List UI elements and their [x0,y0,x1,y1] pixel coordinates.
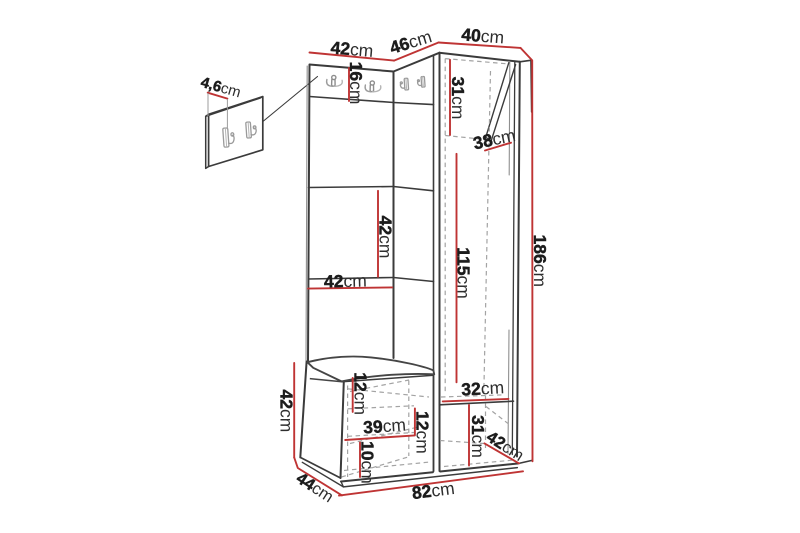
svg-text:82cm: 82cm [411,478,456,503]
svg-text:42cm: 42cm [483,428,527,465]
svg-text:186cm: 186cm [530,235,550,288]
svg-text:12cm: 12cm [351,372,371,415]
svg-text:16cm: 16cm [346,62,366,105]
svg-text:10cm: 10cm [358,441,378,484]
svg-text:42cm: 42cm [376,216,396,259]
svg-text:39cm: 39cm [363,415,407,438]
svg-text:12cm: 12cm [413,411,433,454]
svg-text:44cm: 44cm [293,469,337,506]
svg-text:40cm: 40cm [461,24,505,47]
svg-text:42cm: 42cm [276,390,296,433]
svg-text:38cm: 38cm [471,125,517,153]
svg-text:42cm: 42cm [330,37,374,61]
svg-text:31cm: 31cm [468,415,488,458]
svg-text:42cm: 42cm [324,270,367,291]
svg-text:115cm: 115cm [454,247,474,299]
svg-text:32cm: 32cm [461,377,505,399]
svg-text:31cm: 31cm [448,77,468,120]
